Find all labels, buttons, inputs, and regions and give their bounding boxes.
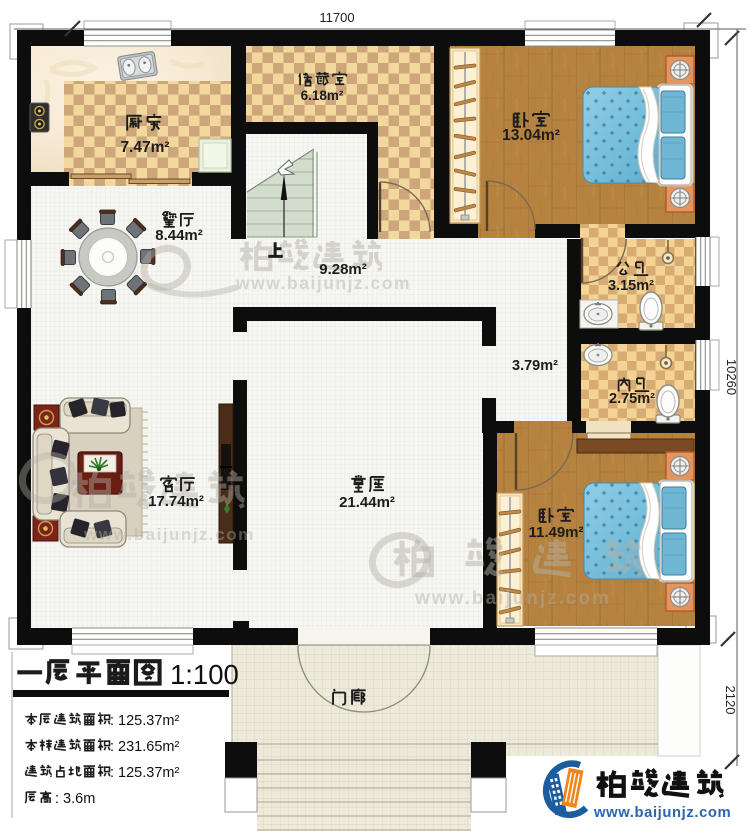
svg-text:7.47m²: 7.47m² xyxy=(120,139,169,156)
svg-text:13.04m²: 13.04m² xyxy=(502,127,560,144)
svg-text:www.baijunjz.com: www.baijunjz.com xyxy=(593,805,731,821)
svg-text:10260: 10260 xyxy=(724,359,739,395)
svg-text:www.baijunjz.com: www.baijunjz.com xyxy=(414,588,611,609)
svg-text:: 125.37m²: : 125.37m² xyxy=(110,765,179,781)
svg-text:: 231.65m²: : 231.65m² xyxy=(110,739,179,755)
svg-text:: 3.6m: : 3.6m xyxy=(55,791,95,807)
svg-text:11.49m²: 11.49m² xyxy=(528,524,583,541)
svg-text:11700: 11700 xyxy=(319,10,354,25)
svg-text:9.28m²: 9.28m² xyxy=(319,261,367,278)
svg-text:3.15m²: 3.15m² xyxy=(608,278,654,294)
svg-text:6.18m²: 6.18m² xyxy=(301,88,344,103)
svg-text:3.79m²: 3.79m² xyxy=(512,358,558,374)
svg-text:www.baijunjz.com: www.baijunjz.com xyxy=(83,525,255,544)
svg-text:21.44m²: 21.44m² xyxy=(339,494,395,511)
svg-text:: 125.37m²: : 125.37m² xyxy=(110,713,179,729)
svg-text:8.44m²: 8.44m² xyxy=(155,227,203,244)
svg-text:2120: 2120 xyxy=(723,686,738,715)
svg-text:1:100: 1:100 xyxy=(170,659,239,690)
svg-text:2.75m²: 2.75m² xyxy=(609,391,655,407)
svg-text:17.74m²: 17.74m² xyxy=(148,493,204,510)
